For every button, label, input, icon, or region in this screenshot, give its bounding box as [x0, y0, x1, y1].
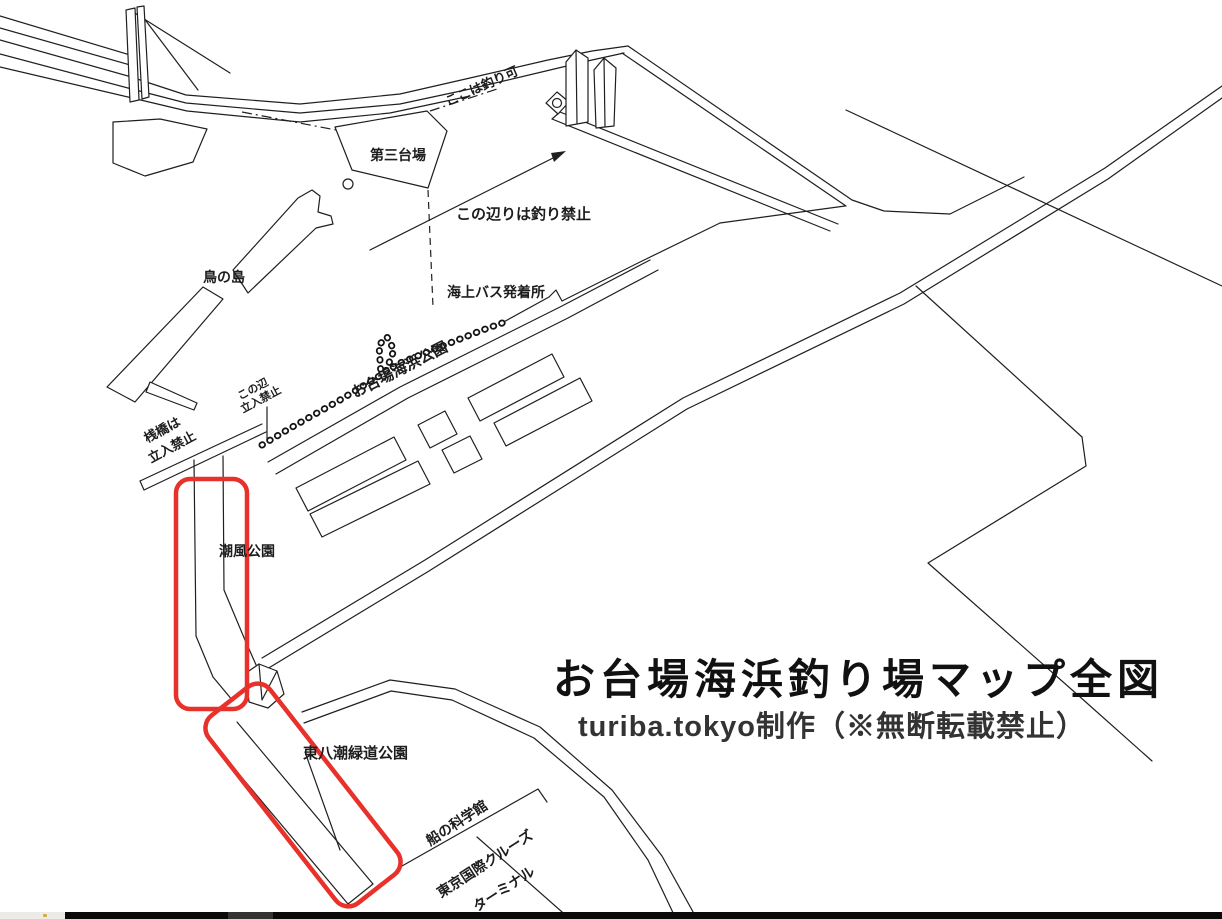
rainbow-bridge — [0, 6, 628, 122]
fishing-map-canvas: ここは釣り可 第三台場 この辺りは釣り禁止 海上バス発着所 鳥の島 お台場海浜公… — [0, 0, 1222, 919]
small-island-outline — [113, 119, 207, 176]
taskbar-dot-icon — [43, 914, 47, 917]
label-sea-bus-terminal: 海上バス発着所 — [447, 284, 545, 300]
label-shiokaze-koen: 潮風公園 — [219, 543, 275, 559]
map-title: お台場海浜釣り場マップ全図 — [553, 646, 1164, 707]
park-blocks — [296, 354, 592, 537]
label-fune-no-kagakukan: 船の科学館 — [423, 797, 490, 849]
pond-icon — [343, 179, 353, 189]
beach-towers — [566, 50, 616, 128]
red-highlight-higashi-yashio — [199, 677, 407, 913]
taskbar-mid-segment — [228, 912, 273, 919]
beach-shoreline — [500, 206, 845, 324]
taskbar-left-segment — [0, 912, 65, 919]
label-fishing-ok: ここは釣り可 — [443, 63, 520, 108]
label-tori-no-shima: 鳥の島 — [203, 269, 245, 285]
northeast-shoreline — [622, 46, 1024, 214]
taskbar-edge — [0, 912, 1222, 919]
label-higashi-yashio: 東八潮緑道公園 — [303, 744, 408, 762]
tori-no-shima-island — [107, 190, 333, 410]
map-credit: turiba.tokyo制作（※無断転載禁止） — [578, 703, 1086, 745]
daisan-daiba-island — [242, 88, 500, 307]
label-cruise-terminal-1: 東京国際クルーズ — [434, 827, 536, 901]
map-line-art: ここは釣り可 第三台場 この辺りは釣り禁止 海上バス発着所 鳥の島 お台場海浜公… — [0, 0, 1222, 919]
label-no-fishing-area: この辺りは釣り禁止 — [456, 205, 591, 223]
label-daisan-daiba: 第三台場 — [370, 147, 426, 163]
